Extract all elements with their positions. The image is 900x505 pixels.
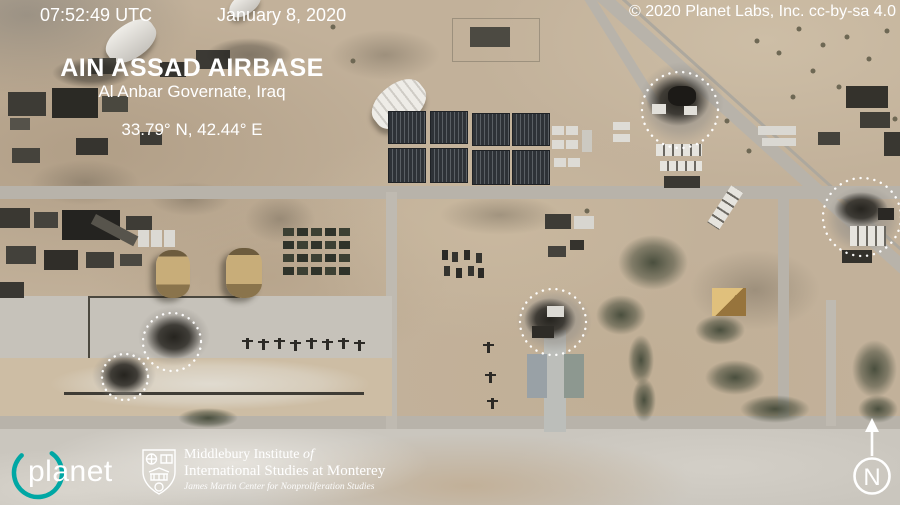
damage-circle-west-large bbox=[143, 313, 201, 371]
satellite-image: 07:52:49 UTC January 8, 2020 © 2020 Plan… bbox=[0, 0, 900, 505]
damage-circle-center bbox=[520, 289, 586, 355]
planet-wordmark: planet bbox=[28, 455, 113, 489]
damage-circle-east bbox=[823, 178, 900, 256]
institute-attribution: Middlebury Institute of International St… bbox=[184, 447, 385, 493]
capture-time: 07:52:49 UTC bbox=[40, 5, 152, 26]
institute-shield-icon bbox=[141, 448, 177, 498]
location-subtitle: Al Anbar Governate, Iraq bbox=[40, 82, 344, 102]
institute-name-line1: Middlebury Institute of bbox=[184, 447, 385, 463]
capture-date: January 8, 2020 bbox=[217, 5, 346, 26]
damage-circle-north bbox=[642, 72, 718, 148]
coordinates: 33.79° N, 42.44° E bbox=[40, 120, 344, 140]
damage-circle-west-small bbox=[102, 354, 148, 400]
compass-north-label: N bbox=[863, 464, 880, 491]
compass-arrowhead bbox=[865, 418, 879, 432]
institute-center-line: James Martin Center for Nonproliferation… bbox=[184, 482, 385, 493]
image-credit: © 2020 Planet Labs, Inc. cc-by-sa 4.0 bbox=[629, 3, 896, 21]
page-title: AIN ASSAD AIRBASE bbox=[40, 54, 344, 83]
north-compass: N bbox=[844, 416, 900, 502]
institute-name-line2: International Studies at Monterey bbox=[184, 463, 385, 480]
